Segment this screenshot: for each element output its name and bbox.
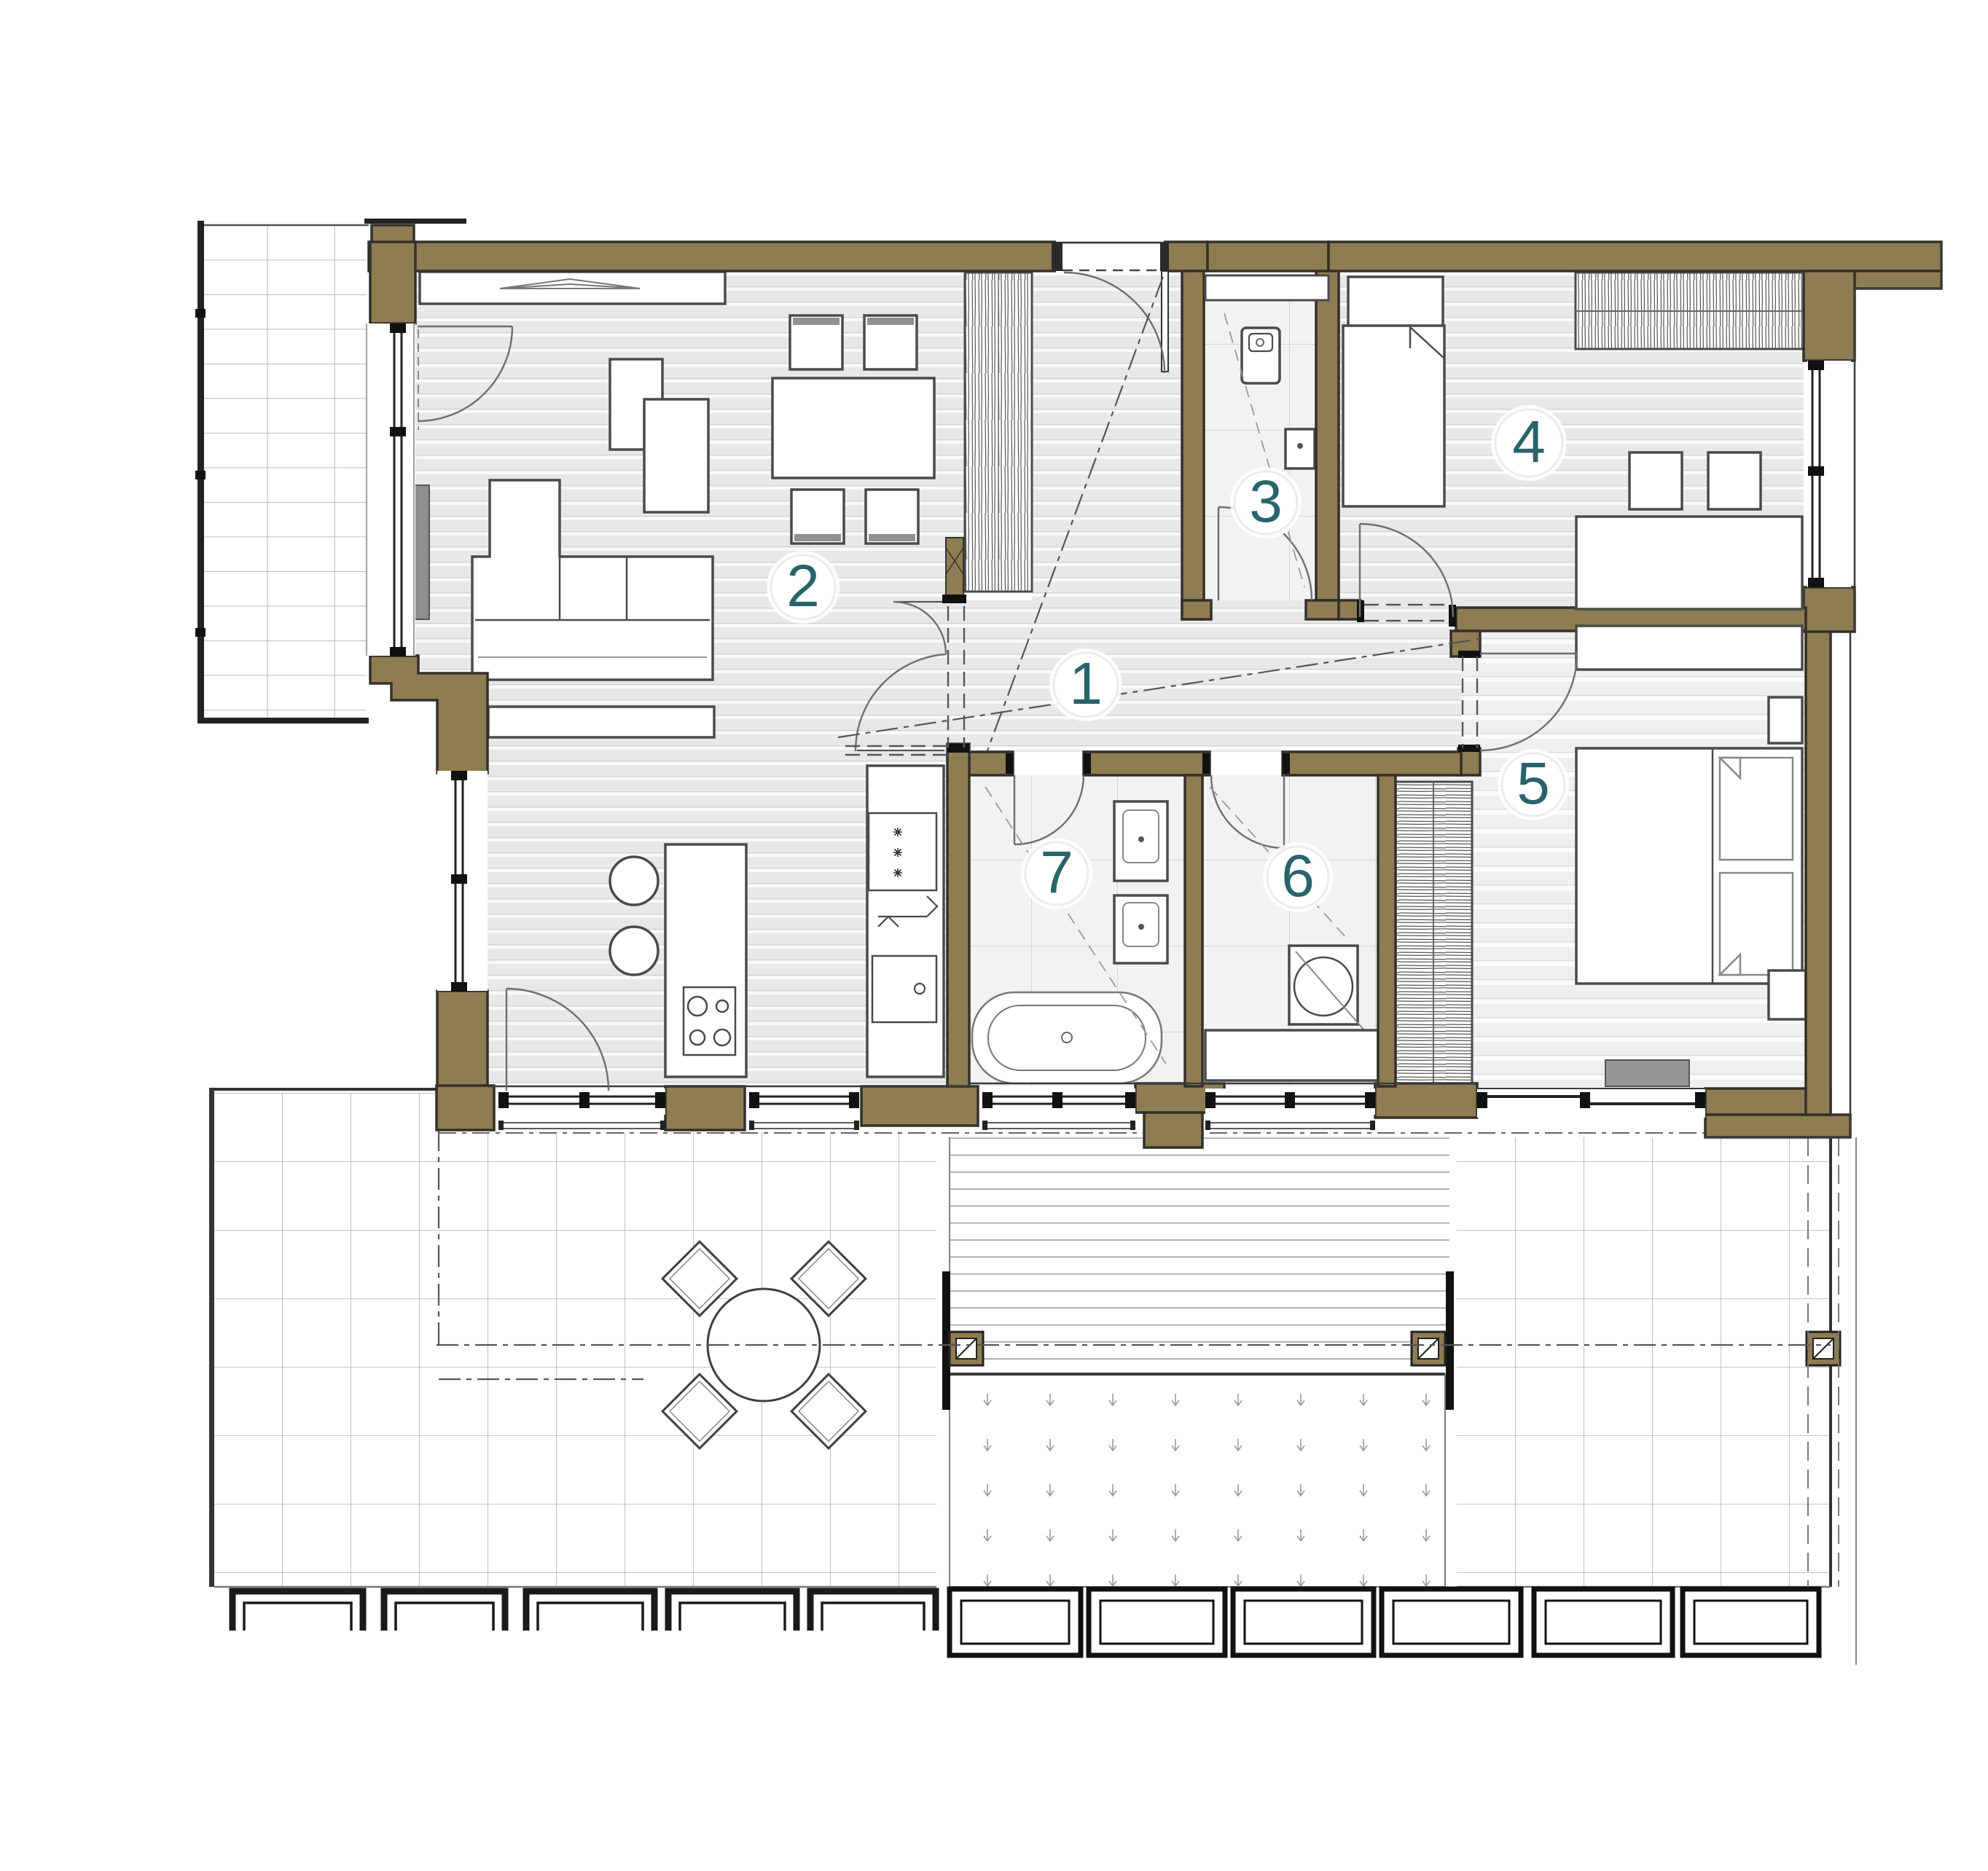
- svg-text:6: 6: [1281, 843, 1315, 909]
- svg-text:4: 4: [1512, 409, 1546, 475]
- svg-text:7: 7: [1040, 839, 1073, 906]
- svg-text:5: 5: [1517, 750, 1550, 817]
- svg-text:2: 2: [786, 553, 820, 619]
- svg-text:1: 1: [1069, 651, 1103, 717]
- svg-text:3: 3: [1249, 468, 1283, 535]
